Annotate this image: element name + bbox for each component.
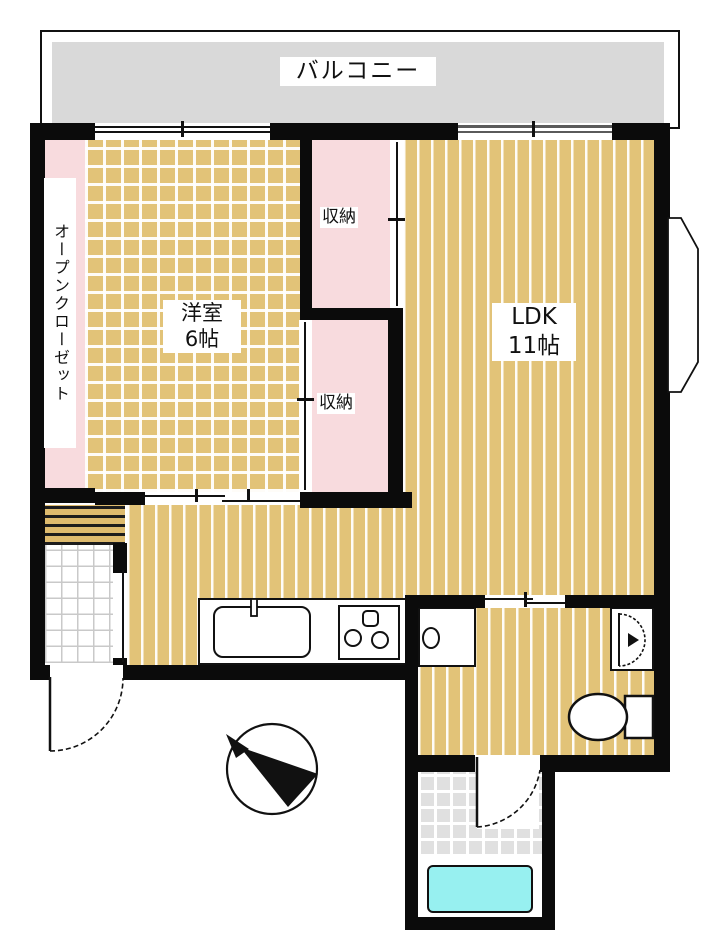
- bay-duct: [668, 218, 698, 392]
- wall: [300, 140, 312, 308]
- stove-burner-small: [362, 610, 379, 627]
- bathroom-door-opening: [475, 755, 540, 772]
- floorplan-canvas: バルコニー 洋室 6帖 LDK 11帖 収納 収納 オープンクローゼット: [0, 0, 708, 936]
- wall: [540, 755, 670, 772]
- wall-left: [30, 123, 45, 680]
- entrance-step: [45, 505, 125, 545]
- open-closet-label: オープンクローゼット: [44, 178, 76, 448]
- door-line: [145, 495, 225, 497]
- genkan-edge-line: [122, 570, 124, 662]
- wall: [123, 665, 418, 680]
- wall: [565, 595, 670, 608]
- door-line: [396, 142, 398, 306]
- wall: [30, 665, 50, 680]
- door-tick: [247, 489, 250, 502]
- door-line: [527, 602, 565, 604]
- wash-basin-unit: [610, 607, 654, 671]
- wall: [45, 488, 95, 503]
- door-line: [222, 500, 300, 502]
- wall-bath-right: [542, 772, 555, 930]
- wall: [388, 308, 403, 508]
- window-line: [458, 131, 612, 133]
- compass-icon: [226, 724, 318, 814]
- western-room-label: 洋室 6帖: [163, 300, 241, 353]
- ldk-floor: [403, 138, 656, 595]
- wall-bath-left: [405, 772, 418, 930]
- door-tick: [524, 592, 527, 607]
- western-room-name: 洋室: [165, 300, 239, 326]
- door-tick: [195, 489, 198, 502]
- door-tick: [297, 398, 314, 401]
- ldk-label: LDK 11帖: [492, 303, 576, 361]
- storage-lower-label: 収納: [317, 393, 355, 414]
- wall: [270, 123, 458, 140]
- bathtub: [427, 865, 533, 913]
- stove-burner-right: [371, 631, 389, 649]
- bathroom-door-clearance: [477, 772, 539, 829]
- stove-burner-left: [344, 629, 362, 647]
- ldk-name: LDK: [494, 303, 574, 332]
- wall-bath-bottom: [405, 917, 555, 930]
- window-tick: [532, 121, 535, 137]
- sliding-door-western-room: [145, 492, 300, 505]
- door-tick: [388, 218, 405, 221]
- western-room-size: 6帖: [165, 326, 239, 352]
- wall-right: [654, 123, 670, 772]
- door-line: [304, 322, 306, 490]
- kitchen-sink: [213, 606, 311, 658]
- entrance-tile-floor: [45, 545, 113, 663]
- wall-genkan-stub-top: [113, 543, 127, 573]
- entrance-opening: [50, 665, 123, 680]
- entrance-door-swing: [50, 678, 123, 751]
- balcony-label: バルコニー: [280, 57, 436, 86]
- window-tick: [181, 121, 184, 137]
- storage-upper-label: 収納: [320, 207, 358, 228]
- wall: [405, 595, 485, 608]
- wall: [95, 492, 145, 505]
- washing-machine-pan: [418, 607, 476, 667]
- window-line: [458, 125, 612, 128]
- wall: [300, 492, 412, 508]
- ldk-size: 11帖: [494, 332, 574, 361]
- wall-washroom-left: [405, 595, 418, 772]
